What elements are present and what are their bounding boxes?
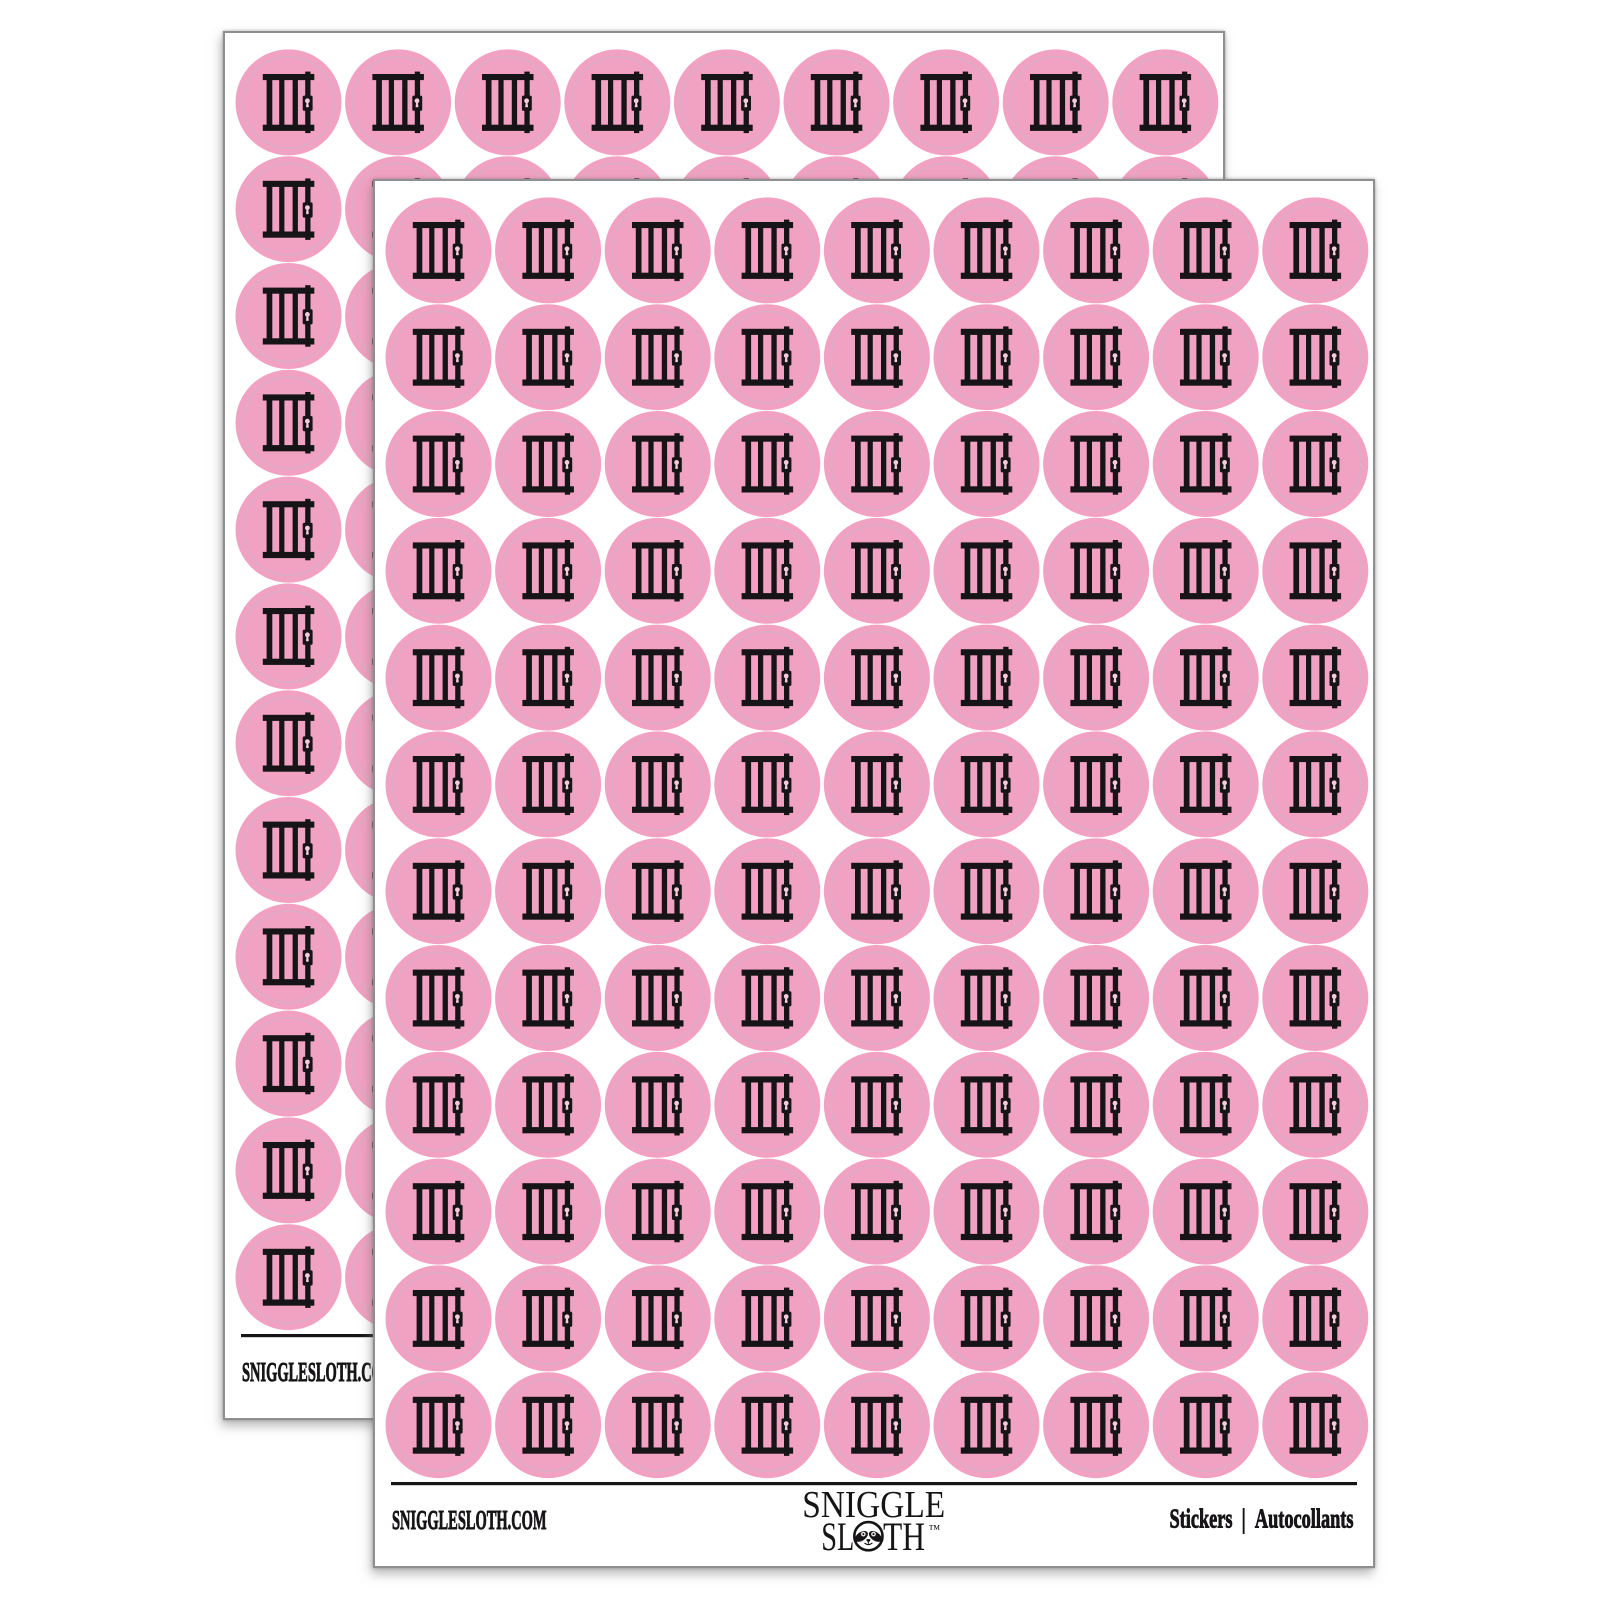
svg-text:™: ™ (929, 1522, 941, 1536)
svg-text:TH: TH (883, 1514, 925, 1559)
svg-text:SNIGGLESLOTH.COM: SNIGGLESLOTH.COM (392, 1504, 547, 1535)
svg-text:SL: SL (821, 1514, 854, 1559)
svg-text:Stickers | Autocollants: Stickers | Autocollants (1170, 1502, 1354, 1533)
